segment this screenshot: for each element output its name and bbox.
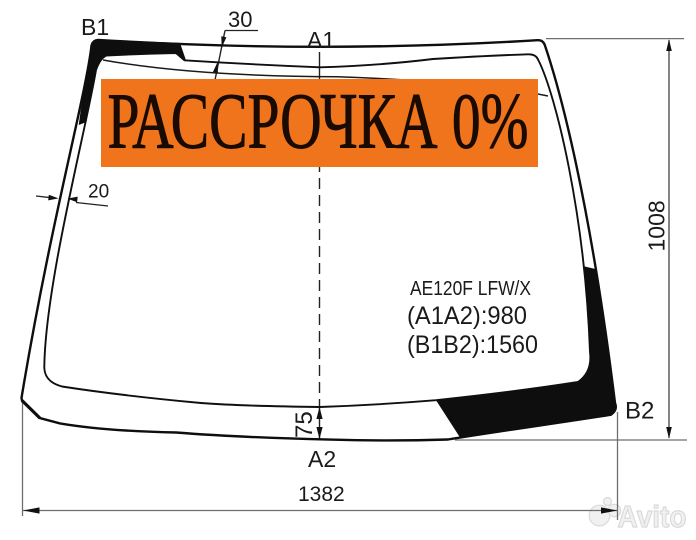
svg-text:75: 75: [291, 411, 318, 438]
svg-text:A1: A1: [307, 27, 335, 53]
svg-text:B1: B1: [81, 14, 109, 40]
svg-text:B2: B2: [625, 398, 654, 425]
svg-text:РАССРОЧКА 0%: РАССРОЧКА 0%: [108, 79, 529, 166]
svg-text:Avito: Avito: [618, 499, 687, 534]
svg-text:30: 30: [228, 7, 252, 32]
svg-text:1382: 1382: [298, 483, 345, 506]
svg-text:1008: 1008: [644, 200, 670, 251]
svg-text:20: 20: [88, 182, 109, 203]
svg-text:AE120F LFW/X: AE120F LFW/X: [410, 278, 531, 300]
svg-text:(B1B2):1560: (B1B2):1560: [407, 331, 538, 359]
svg-text:(A1A2):980: (A1A2):980: [407, 302, 527, 330]
svg-text:A2: A2: [308, 446, 336, 472]
